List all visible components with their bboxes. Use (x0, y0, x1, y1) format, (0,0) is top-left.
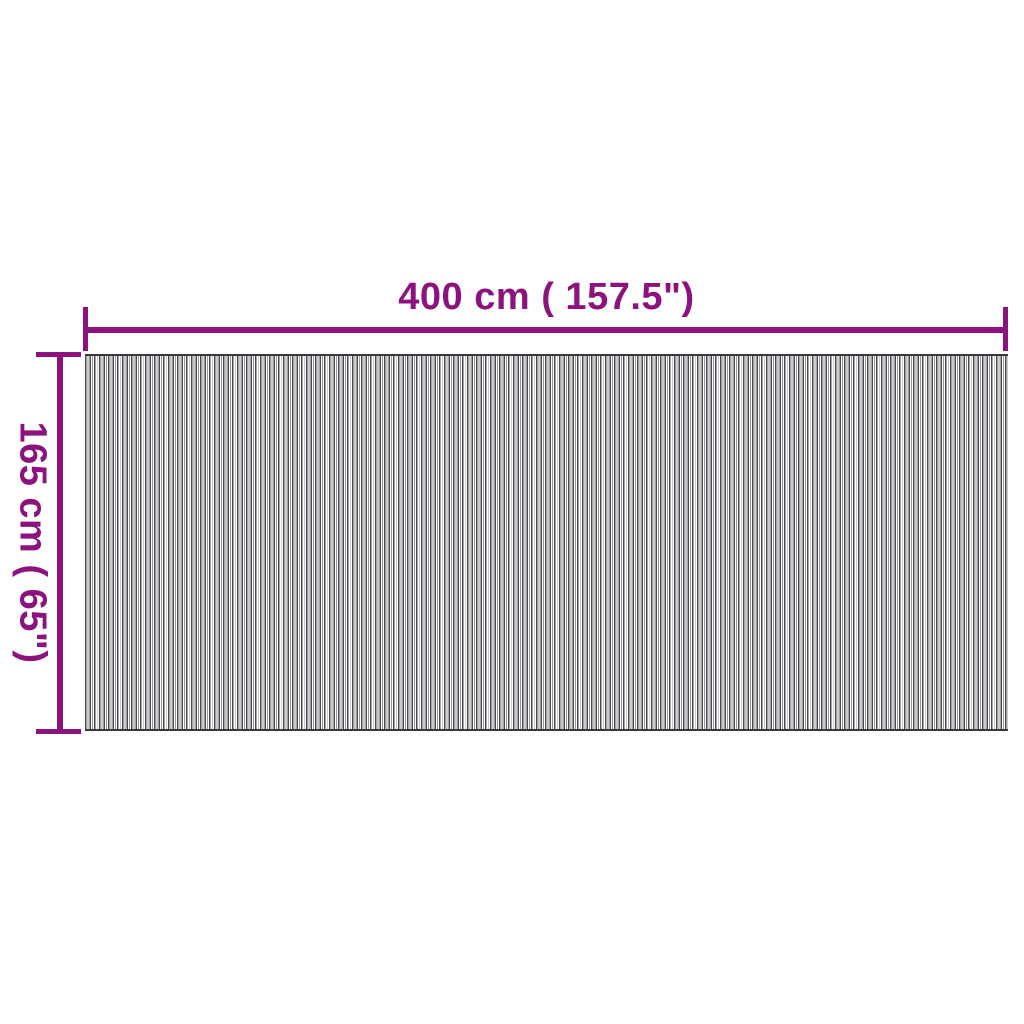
height-dimension-tick-bottom (36, 729, 81, 734)
height-dimension-tick-top (36, 352, 81, 357)
height-dimension-label-box: 165 cm ( 65") (12, 354, 53, 731)
width-dimension-tick-right (1003, 307, 1008, 351)
height-dimension-label: 165 cm ( 65") (11, 421, 54, 663)
width-dimension-label: 400 cm ( 157.5") (85, 276, 1008, 318)
striped-panel-image (85, 354, 1008, 731)
height-dimension-line (57, 354, 63, 731)
width-dimension-line (85, 327, 1008, 333)
width-dimension-tick-left (83, 307, 88, 351)
product-dimension-diagram: 400 cm ( 157.5") 165 cm ( 65") (0, 0, 1024, 1024)
